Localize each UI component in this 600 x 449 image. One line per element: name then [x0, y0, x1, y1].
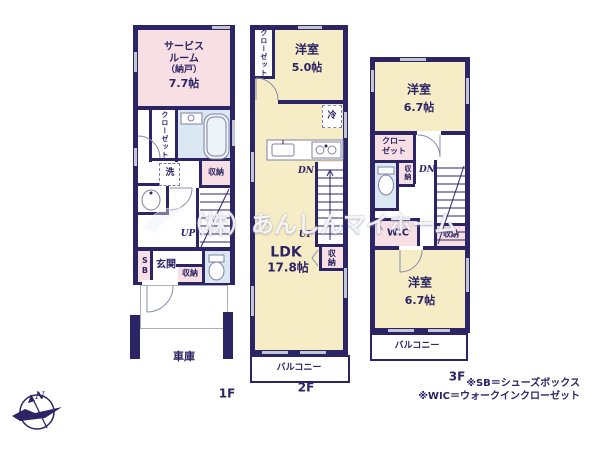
floor3-bedroom-bottom-size: 6.7帖 — [405, 295, 436, 307]
legend-note-wic: ※WIC＝ウォークインクローゼット — [418, 391, 580, 404]
floor1-closet-label: クローゼット — [160, 111, 168, 157]
window-mark — [232, 120, 235, 146]
floor3-toilet-room — [375, 163, 398, 210]
window-mark — [134, 148, 137, 166]
floor1-laundry-label: 洗 — [165, 169, 174, 179]
window-mark — [428, 329, 450, 332]
floor1-porch — [140, 285, 228, 329]
floor2-closet-label: クローゼット — [259, 29, 267, 77]
compass-icon: N — [10, 386, 66, 442]
floor3-closet-label-2: ゼット — [382, 148, 406, 157]
window-mark — [300, 351, 326, 354]
service-room-size: 7.7帖 — [169, 78, 200, 90]
floor3-storage-hall-label: 収納 — [403, 165, 411, 181]
floor1-storage-mid-label: 収納 — [208, 169, 224, 178]
floor2-storage-label: 収納 — [327, 249, 336, 267]
window-mark — [344, 112, 347, 138]
window-mark — [262, 351, 288, 354]
window-mark — [371, 70, 374, 92]
window-mark — [388, 329, 414, 332]
compass-north-label: N — [34, 391, 45, 402]
service-room-label-1: サービス — [164, 42, 204, 53]
garage-pillar-right — [223, 312, 233, 359]
floor1-sb-label: SB — [140, 256, 149, 276]
window-mark — [134, 52, 137, 72]
window-mark — [251, 286, 254, 316]
watermark-text: （株）あんしんマイホーム — [182, 205, 457, 239]
window-mark — [400, 58, 426, 61]
window-mark — [344, 268, 347, 298]
floor2-bedroom-size: 5.0帖 — [292, 62, 323, 74]
floor3-dn-label: DN — [419, 166, 435, 176]
floor3-balcony-label: バルコニー — [395, 342, 440, 352]
floor3-bedroom-top-label: 洋室 — [407, 83, 431, 96]
floor2-bedroom-label: 洋室 — [295, 43, 319, 56]
floor3-bedroom-top-size: 6.7帖 — [404, 102, 435, 114]
service-room-label-2: ルーム — [169, 54, 199, 65]
floor1-bathroom — [176, 110, 230, 160]
floor1-garage-label: 車庫 — [173, 351, 195, 363]
window-mark — [466, 258, 469, 292]
garage-pillar-left — [130, 315, 140, 359]
floor1-entrance-label: 玄関 — [156, 260, 176, 271]
service-room-label-3: （納戸） — [166, 66, 202, 76]
floor3-closet-label-1: クロー — [382, 138, 406, 147]
floor2-ldk-size: 17.8帖 — [267, 261, 309, 274]
floor3-bedroom-bottom-label: 洋室 — [408, 276, 432, 289]
floor2-dn-label: DN — [298, 167, 314, 177]
floor2-refrigerator-label: 冷 — [327, 112, 336, 122]
window-mark — [466, 78, 469, 104]
legend-notes: ※SB＝シューズボックス ※WIC＝ウォークインクローゼット — [418, 378, 580, 403]
window-mark — [298, 26, 322, 29]
floor1-toilet-room — [205, 250, 230, 283]
floor-plan-canvas: サービス ルーム （納戸） 7.7帖 クローゼット 洗 収納 UP SB 玄関 … — [0, 0, 600, 449]
window-mark — [212, 26, 230, 29]
window-mark — [251, 152, 254, 182]
floor1-label: 1F — [219, 387, 236, 400]
floor2-ldk-label: LDK — [270, 245, 301, 260]
legend-note-sb: ※SB＝シューズボックス — [418, 378, 580, 391]
floor2-label: 2F — [298, 381, 315, 394]
floor1-storage-entrance-label: 収納 — [182, 270, 198, 279]
floor2-balcony-label: バルコニー — [277, 364, 322, 374]
